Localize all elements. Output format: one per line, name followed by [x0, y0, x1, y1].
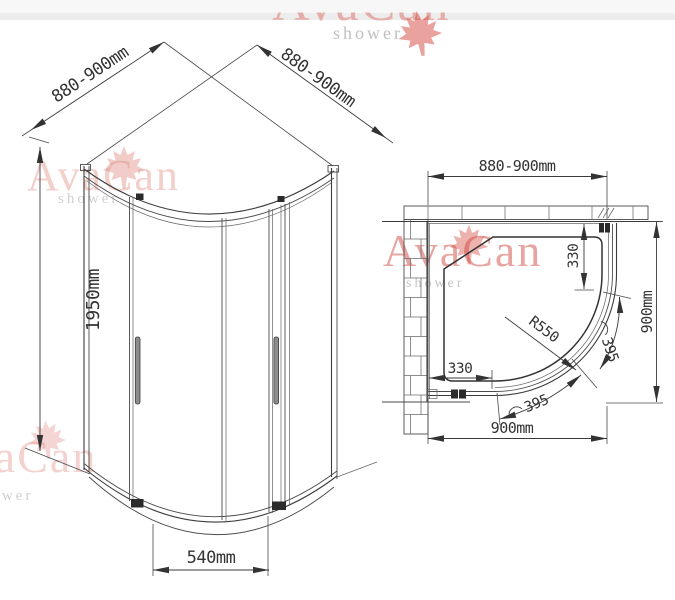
dim-plan-door-arc-bottom: 395 — [497, 359, 597, 425]
dim-plan-depth-right: 900mm — [606, 222, 663, 404]
dim-front-width-left: 880-900mm — [31, 42, 164, 130]
dim-plan-door-arc-bottom-label: 395 — [522, 392, 551, 416]
dim-door-opening-label: 540mm — [187, 548, 236, 568]
dim-plan-fixed-bottom-label: 330 — [448, 361, 473, 377]
brand-watermark: AvaCan — [383, 225, 542, 276]
dim-front-height-label: 1950mm — [83, 269, 104, 331]
roller-bracket — [136, 194, 144, 201]
front-view: 880-900mm 880-900mm 1950mm 540mm — [22, 42, 393, 576]
dim-front-width-right: 880-900mm — [257, 44, 386, 138]
right-corner-post — [328, 166, 339, 480]
bottom-guide — [272, 502, 286, 511]
dim-plan-door-arc-right-label: 395 — [598, 336, 621, 365]
dim-front-width-left-label: 880-900mm — [48, 42, 132, 107]
brand-subtitle: shower — [0, 488, 33, 504]
bottom-rail — [84, 464, 337, 535]
wall-top — [404, 206, 648, 220]
dim-plan-fixed-right-label: 330 — [566, 244, 582, 269]
brand-subtitle: shower — [333, 23, 403, 43]
extension-line — [29, 137, 49, 143]
base-edge-right — [337, 462, 377, 477]
top-strip — [0, 0, 675, 13]
brand-watermark: AvaCan — [0, 431, 97, 482]
watermark-front-view: AvaCan shower — [27, 146, 180, 207]
door-handle — [135, 337, 140, 404]
dim-plan-radius-label: R550 — [525, 314, 561, 347]
dim-plan-width-top-label: 880-900mm — [479, 157, 556, 175]
dim-plan-width-bottom-label: 900mm — [491, 419, 534, 437]
dim-front-width-right-label: 880-900mm — [277, 44, 360, 112]
dim-plan-depth-right-label: 900mm — [638, 290, 656, 333]
watermark-plan-view: AvaCan shower — [383, 225, 542, 291]
dim-plan-fixed-right: 330 — [566, 224, 594, 290]
shower-enclosure-technical-drawing: AvaCan shower AvaCan shower AvaCan showe… — [0, 0, 675, 600]
dim-plan-radius: R550 — [505, 314, 576, 370]
roller-bracket — [278, 196, 285, 202]
dim-plan-width-top: 880-900mm — [428, 157, 607, 220]
drawing-canvas: AvaCan shower AvaCan shower AvaCan showe… — [0, 0, 675, 600]
dim-plan-fixed-bottom: 330 — [429, 361, 492, 389]
plan-view: 880-900mm 900mm 900mm 330 330 — [382, 157, 663, 444]
door-panels — [130, 194, 290, 522]
door-handle — [274, 337, 279, 404]
bottom-guide — [131, 499, 144, 508]
extension-line — [22, 130, 31, 136]
watermark-bottom-left: AvaCan shower — [0, 419, 97, 504]
dim-door-opening: 540mm — [153, 516, 269, 576]
extension-line — [386, 138, 393, 143]
dim-plan-width-bottom: 900mm — [428, 406, 607, 444]
